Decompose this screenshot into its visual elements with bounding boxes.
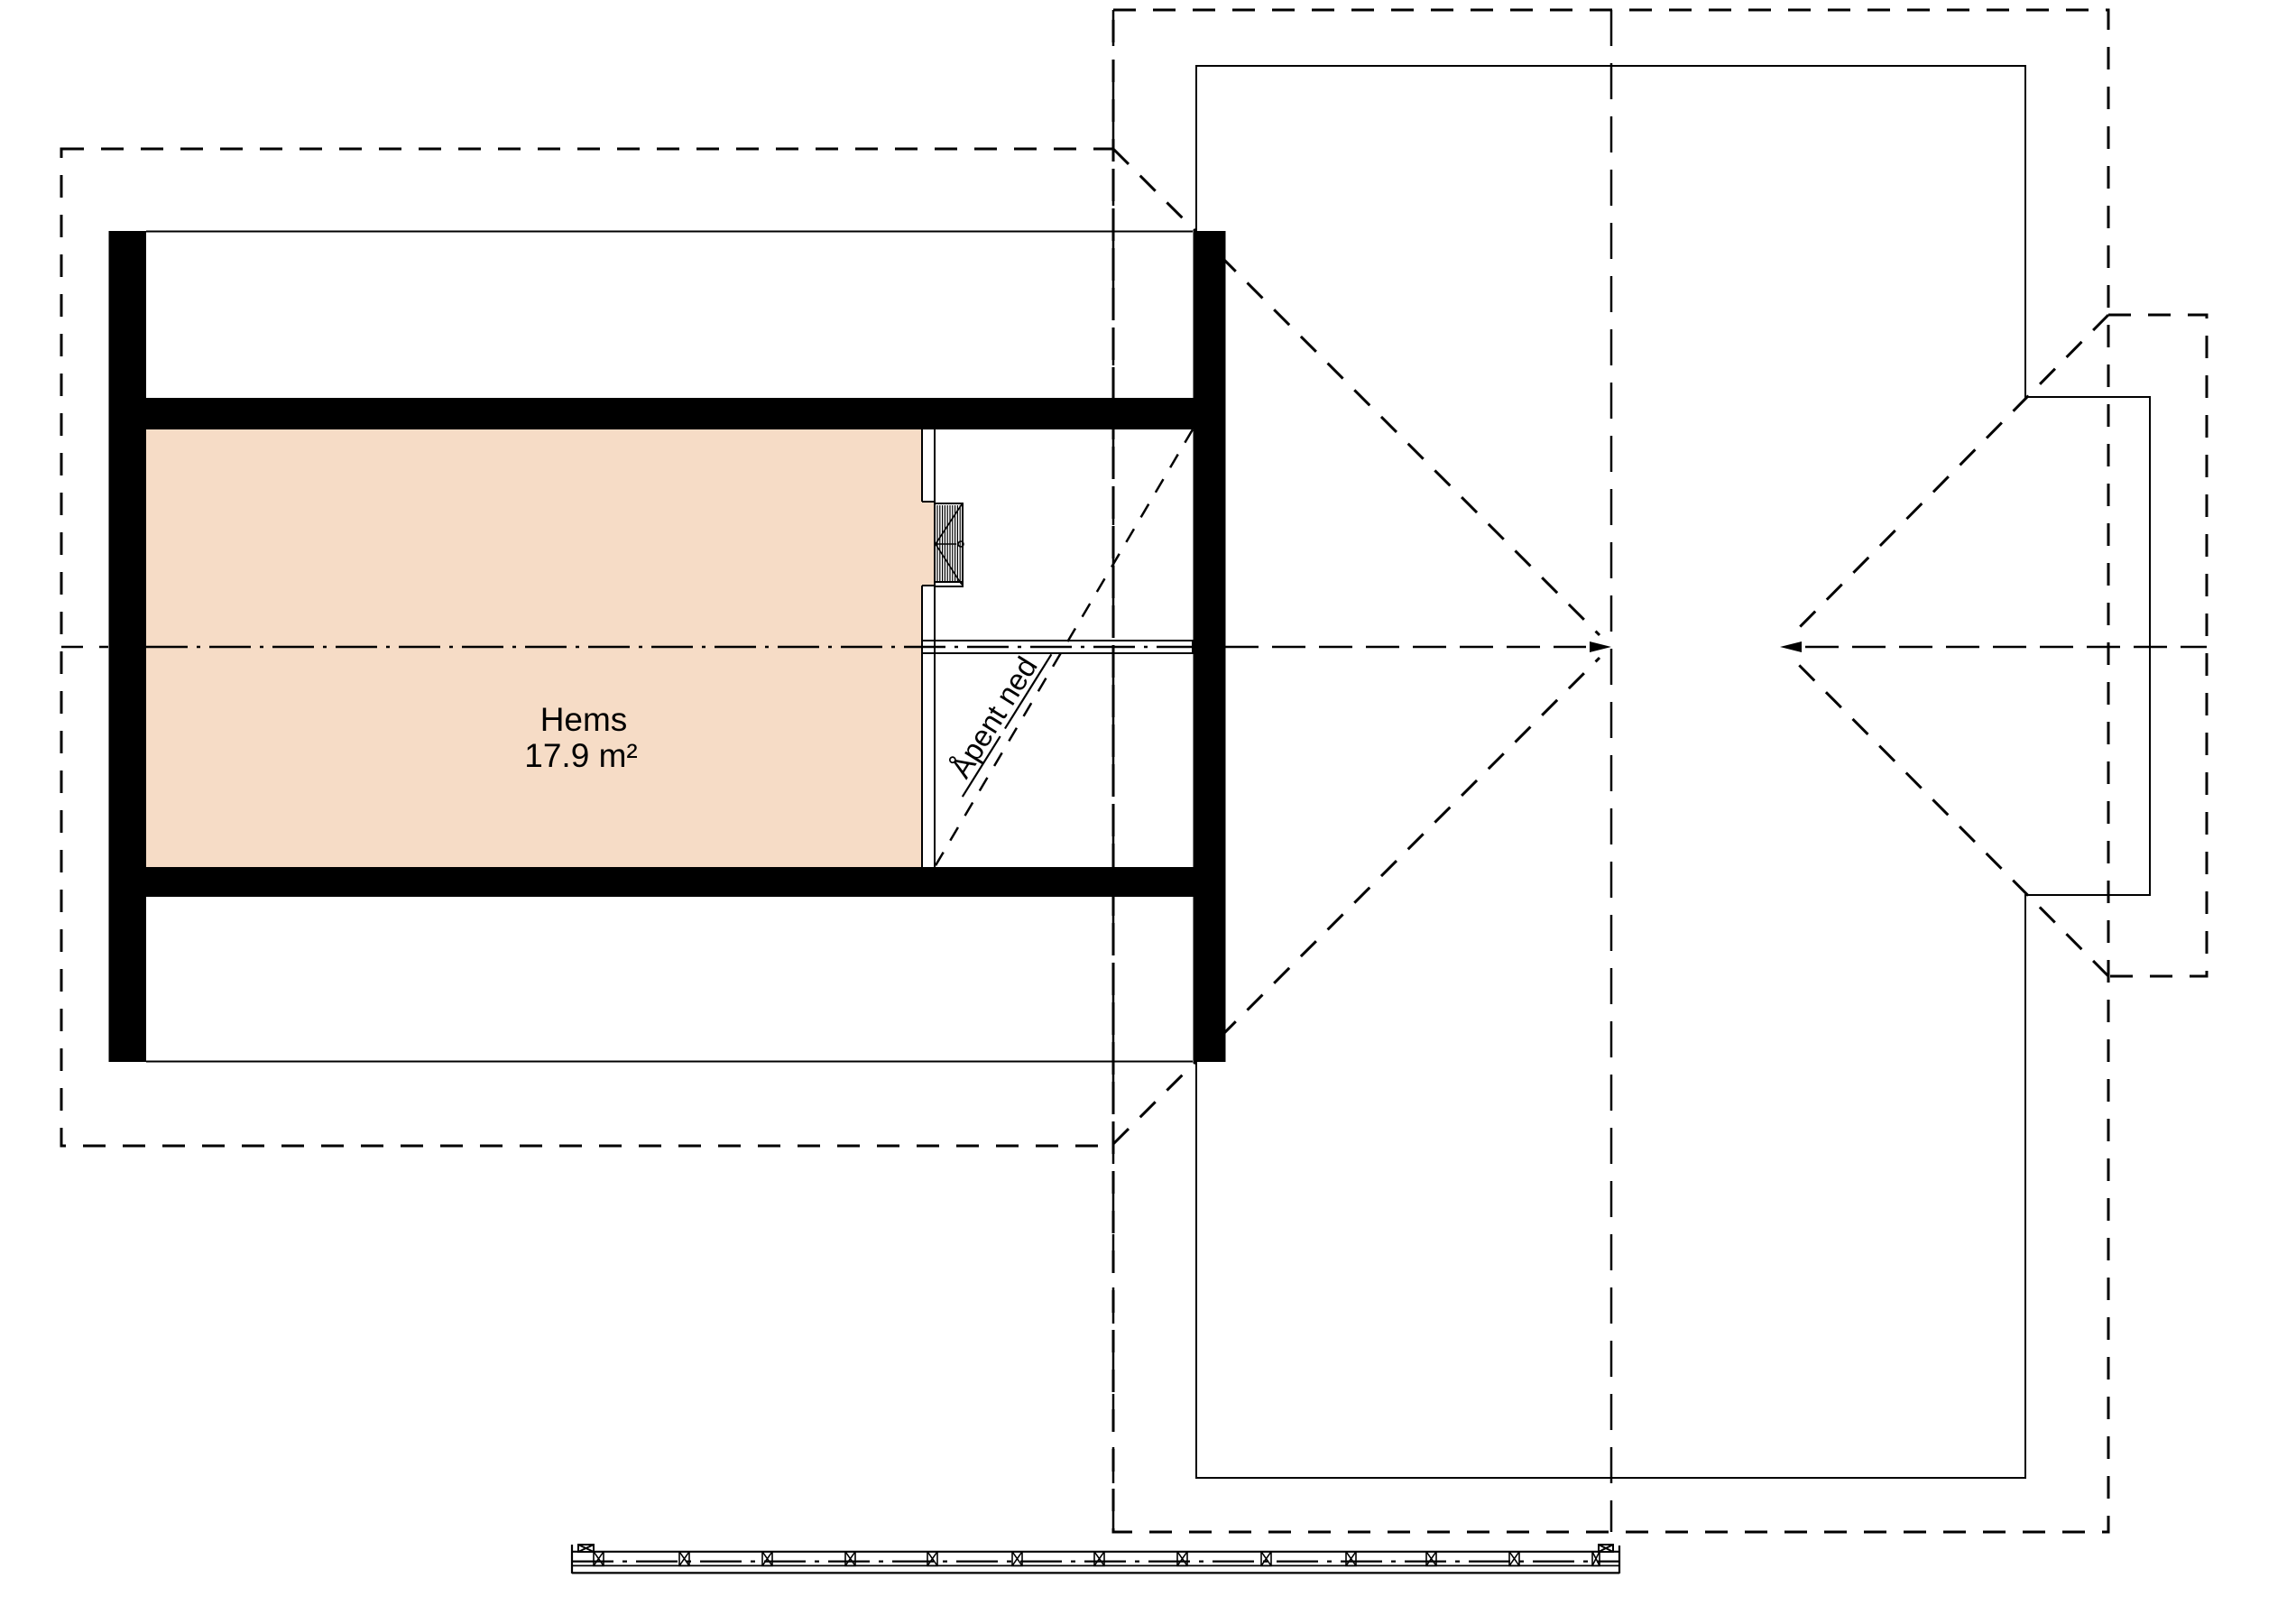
svg-text:17.9 m²: 17.9 m² xyxy=(524,737,637,774)
svg-text:Hems: Hems xyxy=(540,701,628,738)
